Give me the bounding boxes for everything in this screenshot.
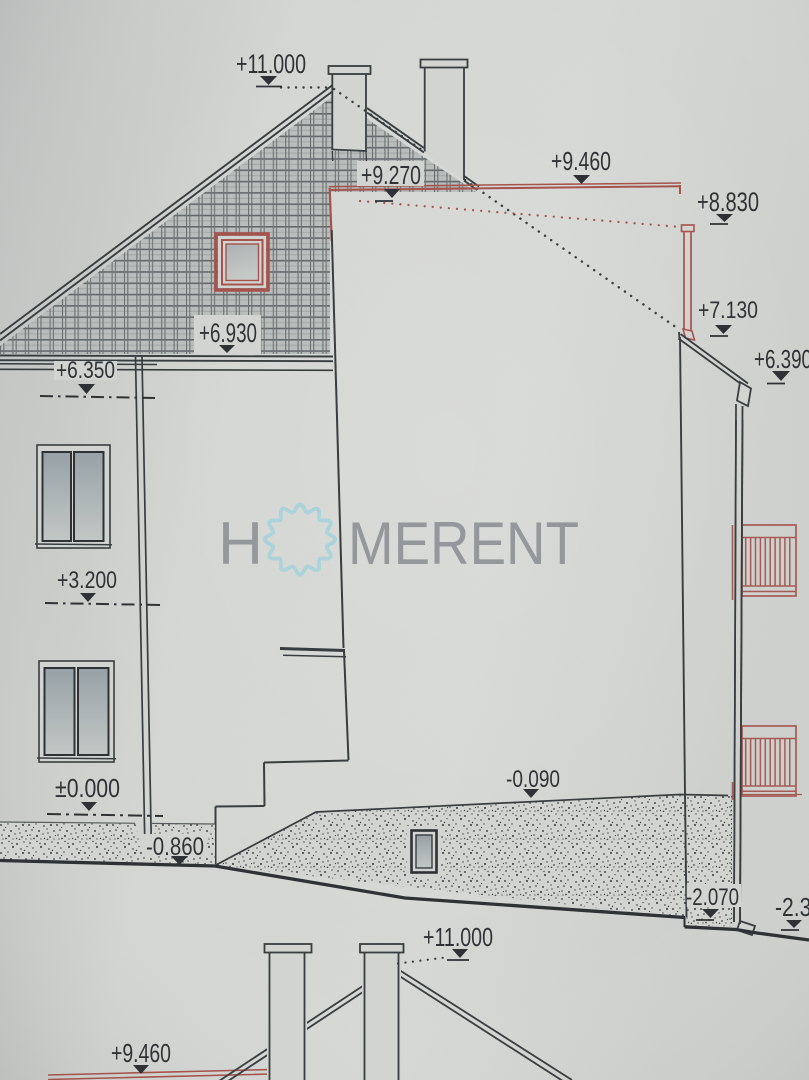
svg-text:+11.000: +11.000 — [423, 924, 493, 952]
svg-text:±0.000: ±0.000 — [55, 773, 120, 803]
svg-text:+9.460: +9.460 — [111, 1040, 171, 1068]
svg-text:+8.830: +8.830 — [697, 187, 759, 217]
svg-text:-0.090: -0.090 — [506, 766, 560, 793]
svg-text:+9.460: +9.460 — [551, 148, 611, 176]
svg-text:-2.070: -2.070 — [686, 884, 739, 911]
svg-text:+3.200: +3.200 — [57, 567, 117, 594]
svg-text:MERENT: MERENT — [348, 510, 579, 577]
svg-text:H: H — [218, 510, 263, 577]
svg-text:+7.130: +7.130 — [698, 297, 758, 324]
svg-text:-2.30: -2.30 — [775, 894, 809, 922]
svg-text:+11.000: +11.000 — [236, 49, 306, 79]
svg-text:+6.390: +6.390 — [754, 346, 809, 374]
svg-text:+6.930: +6.930 — [199, 318, 257, 348]
svg-text:+6.350: +6.350 — [56, 357, 115, 384]
svg-text:+9.270: +9.270 — [361, 160, 421, 190]
